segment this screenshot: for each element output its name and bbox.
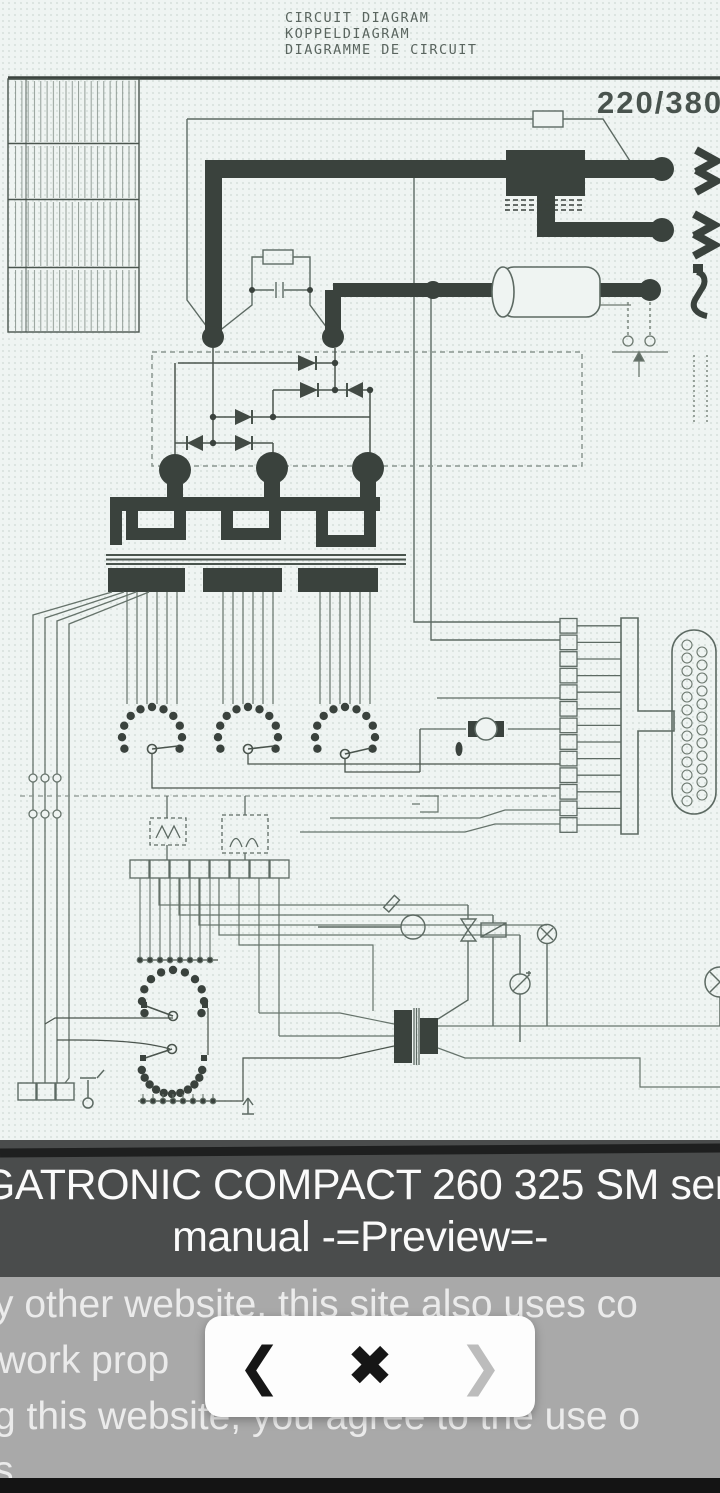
rc-snubber	[218, 250, 330, 332]
control-transformer	[259, 1008, 720, 1087]
title-bar: IGATRONIC COMPACT 260 325 SM serv manual…	[0, 1140, 720, 1277]
lever-symbol	[693, 264, 707, 316]
tap-selector-wipers	[148, 729, 561, 788]
chevron-left-icon: ❮	[238, 1337, 282, 1397]
document-title-line2: manual -=Preview=-	[172, 1214, 548, 1260]
bottom-system-bar	[0, 1478, 720, 1493]
header-line-1: CIRCUIT DIAGRAM	[285, 10, 429, 26]
scanned-document-page: CIRCUIT DIAGRAM KOPPELDIAGRAM DIAGRAMME …	[0, 0, 720, 1140]
close-icon: ✖	[347, 1334, 394, 1399]
primary-winding	[116, 511, 370, 545]
arrow-symbol	[242, 1098, 254, 1114]
fan-motor	[420, 698, 560, 756]
left-supply-wires	[29, 592, 149, 1083]
cookie-text-line2: work prop	[0, 1339, 169, 1383]
circuit-diagram: CIRCUIT DIAGRAM KOPPELDIAGRAM DIAGRAMME …	[0, 0, 720, 1140]
edge-lamp	[705, 967, 720, 1026]
chevron-right-icon: ❯	[459, 1337, 503, 1397]
connector-pins	[682, 640, 707, 806]
bottom-selector-switches	[138, 966, 209, 1098]
cookie-text-line4: s.	[0, 1449, 24, 1478]
panel-lamp	[318, 895, 425, 939]
control-relay-row	[150, 796, 268, 860]
terminal-row	[130, 860, 289, 878]
bottom-selector-wipers	[45, 960, 394, 1101]
document-title-line1: IGATRONIC COMPACT 260 325 SM serv	[0, 1162, 720, 1208]
choke-aux	[600, 297, 707, 425]
rectifier-bridge	[152, 348, 582, 466]
title-bar-stripe	[0, 1143, 720, 1157]
main-switch-block	[506, 150, 585, 196]
terminal-strip	[560, 619, 621, 833]
transformer-posts	[159, 452, 384, 502]
next-page-button[interactable]: ❯	[449, 1337, 513, 1397]
component-feed-wires	[159, 878, 547, 1036]
close-button[interactable]: ✖	[337, 1334, 404, 1399]
main-transformer	[106, 452, 406, 592]
screenshot-root: { "scan": { "header_lines": ["CIRCUIT DI…	[0, 0, 720, 1493]
header-line-2: KOPPELDIAGRAM	[285, 26, 410, 42]
choke-coil	[492, 267, 600, 317]
busbar	[621, 618, 674, 834]
diagram-header: CIRCUIT DIAGRAM KOPPELDIAGRAM DIAGRAMME …	[285, 10, 478, 58]
previous-page-button[interactable]: ❮	[228, 1337, 292, 1397]
secondary-winding	[108, 568, 378, 592]
secondary-tap-wires	[127, 592, 370, 704]
header-line-3: DIAGRAMME DE CIRCUIT	[285, 42, 478, 58]
page-navigation-panel: ❮ ✖ ❯	[205, 1316, 535, 1417]
multipin-connector	[672, 630, 716, 814]
earth-symbol	[80, 1070, 104, 1108]
mains-terminal-boxes	[18, 1083, 74, 1100]
cable-connector-icons	[694, 150, 716, 256]
tap-selector-switches	[118, 703, 379, 753]
voltage-label: 220/380	[597, 85, 720, 120]
mains-thick-traces	[202, 150, 674, 348]
parts-table	[8, 79, 139, 332]
core-lamination	[106, 555, 406, 564]
strip-feed-wires	[300, 796, 560, 832]
